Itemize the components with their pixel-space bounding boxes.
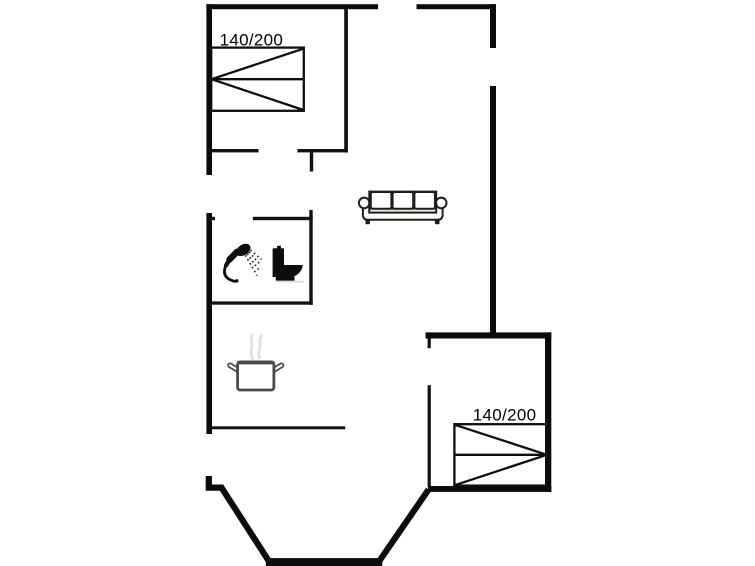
svg-text:140/200: 140/200 <box>473 405 537 424</box>
